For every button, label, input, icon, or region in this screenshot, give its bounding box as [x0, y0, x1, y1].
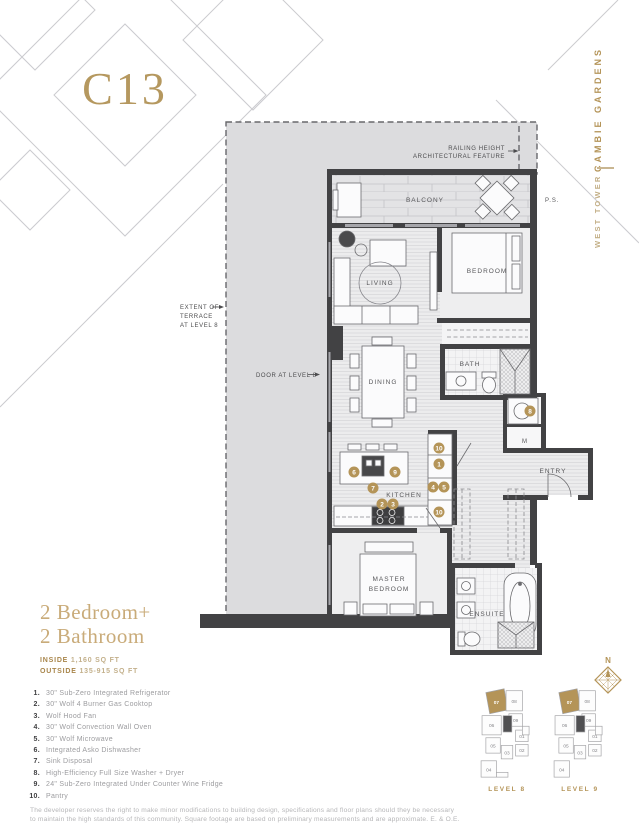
svg-text:09: 09	[513, 718, 519, 724]
svg-text:1: 1	[437, 461, 441, 468]
plan-code: C13	[50, 62, 200, 115]
bedroom-closet-floor	[442, 323, 530, 344]
svg-text:08: 08	[512, 699, 518, 705]
entry-label: ENTRY	[540, 468, 567, 475]
living-label: LIVING	[366, 280, 393, 287]
bath-label: BATH	[460, 361, 481, 368]
feature-item: 5.30" Wolf Microwave	[28, 734, 328, 745]
bedroom-furniture	[452, 233, 522, 293]
feature-list: 1.30" Sub-Zero Integrated Refrigerator 2…	[28, 688, 328, 802]
feature-item: 6.Integrated Asko Dishwasher	[28, 745, 328, 756]
summary-title-line2: 2 Bathroom	[40, 624, 260, 648]
marker-1: 1	[434, 459, 445, 470]
svg-text:03: 03	[504, 751, 510, 757]
feature-item: 8.High-Efficiency Full Size Washer + Dry…	[28, 768, 328, 779]
railing-note-line2: ARCHITECTURAL FEATURE	[413, 154, 505, 160]
svg-text:01: 01	[519, 734, 525, 740]
disclaimer: The developer reserves the right to make…	[30, 806, 610, 824]
marker-7: 7	[368, 483, 379, 494]
feature-item: 10.Pantry	[28, 791, 328, 802]
svg-text:04: 04	[486, 767, 492, 773]
feature-item: 7.Sink Disposal	[28, 756, 328, 767]
svg-text:10: 10	[435, 445, 443, 452]
terrace-note-line3: AT LEVEL 8	[180, 323, 218, 329]
svg-text:06: 06	[562, 723, 568, 729]
marker-10-bottom: 10	[434, 507, 445, 518]
ensuite-label: ENSUITE	[469, 611, 504, 618]
keyplan-level-9: 07 08 09 06 01 05 02 03 04	[551, 684, 609, 780]
keyplan-level-8: 07 08 09 06 01 05 02 03 04	[478, 684, 536, 780]
svg-text:03: 03	[577, 751, 583, 757]
svg-text:N: N	[605, 656, 611, 665]
terrace-arrow	[219, 305, 224, 309]
master-label-line1: MASTER	[372, 576, 405, 583]
keyplan-level-8-label: LEVEL 8	[478, 786, 536, 793]
outside-sqft: OUTSIDE 135-915 SQ FT	[40, 667, 260, 678]
floorplan-page: { "page": { "plan_code": "C13", "project…	[0, 0, 639, 830]
svg-text:04: 04	[559, 767, 565, 773]
svg-text:5: 5	[442, 484, 446, 491]
marker-2: 2	[377, 499, 388, 510]
marker-3: 3	[388, 499, 399, 510]
feature-item: 1.30" Sub-Zero Integrated Refrigerator	[28, 688, 328, 699]
terrace-note-line2: TERRACE	[180, 314, 213, 320]
svg-text:2: 2	[380, 501, 384, 508]
balcony-label: BALCONY	[406, 197, 444, 204]
svg-text:07: 07	[494, 700, 500, 706]
feature-item: 2.30" Wolf 4 Burner Gas Cooktop	[28, 699, 328, 710]
railing-note-line1: RAILING HEIGHT	[448, 146, 505, 152]
svg-text:02: 02	[592, 748, 598, 754]
svg-text:09: 09	[586, 718, 592, 724]
feature-item: 9.24" Sub-Zero Integrated Under Counter …	[28, 779, 328, 790]
svg-text:9: 9	[393, 469, 397, 476]
dining-label: DINING	[369, 379, 398, 386]
kitchen-label: KITCHEN	[386, 492, 422, 499]
inside-sqft: INSIDE 1,160 SQ FT	[40, 656, 260, 667]
marker-8: 8	[525, 406, 536, 417]
marker-9: 9	[390, 467, 401, 478]
terrace-note-line1: EXTENT OF	[180, 305, 219, 311]
marker-4: 4	[428, 482, 439, 493]
ps-label: P.S.	[545, 198, 560, 204]
marker-6: 6	[349, 467, 360, 478]
marker-10-top: 10	[434, 443, 445, 454]
mech-label: M	[522, 439, 528, 445]
svg-text:05: 05	[490, 743, 496, 749]
marker-5: 5	[439, 482, 450, 493]
floorplan-drawing: BALCONY LIVING BEDROOM BATH DINING KITCH…	[170, 110, 610, 680]
svg-text:10: 10	[435, 509, 443, 516]
svg-text:7: 7	[371, 485, 375, 492]
svg-text:4: 4	[431, 484, 435, 491]
bedroom-label: BEDROOM	[467, 268, 508, 275]
svg-text:05: 05	[563, 743, 569, 749]
svg-text:02: 02	[519, 748, 525, 754]
svg-text:8: 8	[528, 408, 532, 415]
svg-text:6: 6	[352, 469, 356, 476]
master-label-line2: BEDROOM	[369, 586, 410, 593]
keyplan-level-9-label: LEVEL 9	[551, 786, 609, 793]
summary-title-line1: 2 Bedroom+	[40, 600, 260, 624]
door-note: DOOR AT LEVEL 8	[256, 373, 317, 379]
svg-text:01: 01	[592, 734, 598, 740]
svg-text:07: 07	[567, 700, 573, 706]
svg-text:3: 3	[391, 501, 395, 508]
svg-text:08: 08	[585, 699, 591, 705]
feature-item: 3.Wolf Hood Fan	[28, 711, 328, 722]
svg-text:06: 06	[489, 723, 495, 729]
unit-summary: 2 Bedroom+ 2 Bathroom INSIDE 1,160 SQ FT…	[40, 600, 260, 677]
feature-item: 4.30" Wolf Convection Wall Oven	[28, 722, 328, 733]
